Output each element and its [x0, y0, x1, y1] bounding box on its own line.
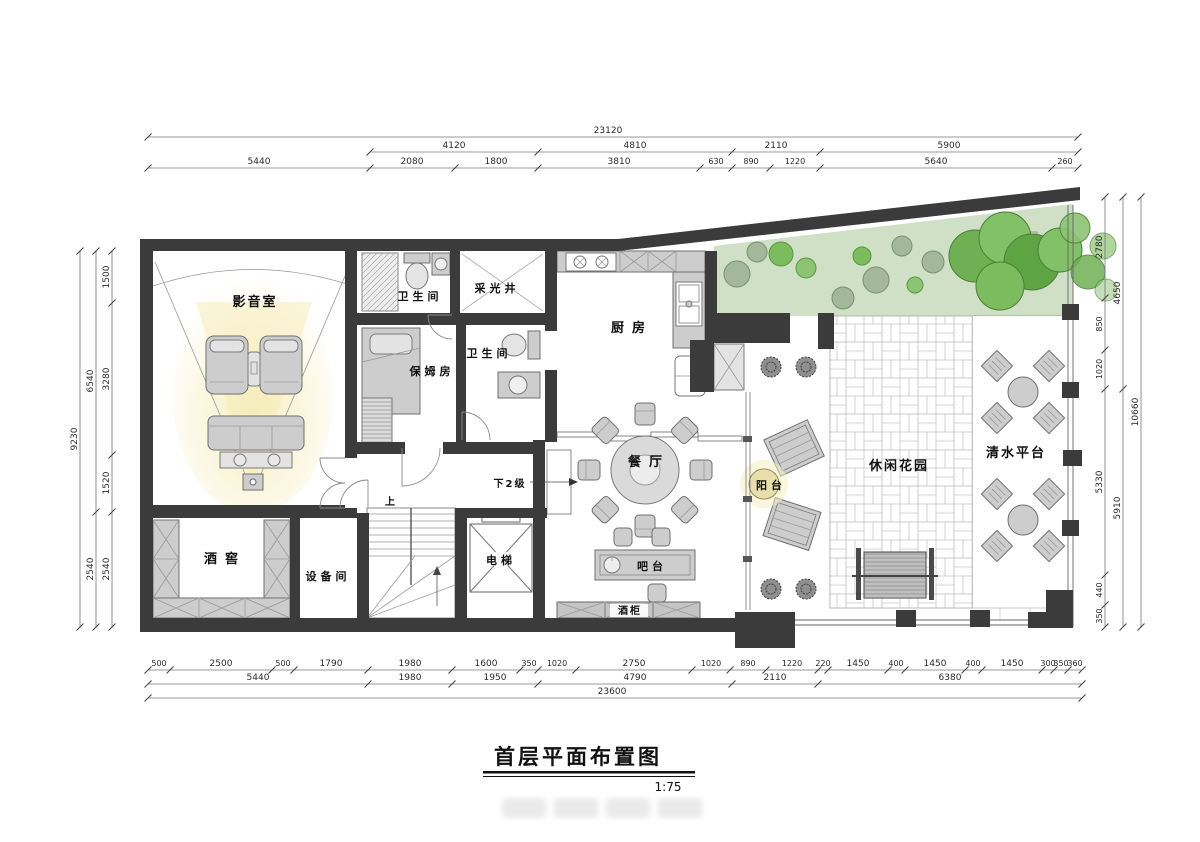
dim-value: 3280	[102, 367, 112, 390]
dim-value: 10660	[1131, 397, 1141, 426]
dim-value: 360	[1067, 659, 1082, 668]
dim-value: 23120	[594, 126, 623, 136]
room-label-bath1: 卫生间	[398, 289, 443, 303]
title-underline	[483, 771, 695, 774]
room-label-water-deck: 清水平台	[986, 445, 1046, 461]
drawing-scale: 1:75	[655, 780, 682, 794]
dim-value: 2750	[623, 659, 646, 669]
bath2-room	[498, 331, 540, 398]
room-label-garden: 休闲花园	[868, 458, 929, 474]
room-label-media: 影音室	[232, 294, 277, 310]
sofa-icon	[208, 416, 304, 450]
shower-area-icon	[362, 253, 398, 311]
dim-value: 4790	[624, 673, 647, 683]
room-label-cellar: 酒窖	[204, 551, 246, 567]
dimension-values-bottom: 500 2500 500 1790 1980 1600 350 1020 275…	[151, 659, 1082, 697]
dim-value: 2540	[86, 557, 96, 580]
dim-value: 5440	[248, 157, 271, 167]
dining-chair-icon	[578, 460, 600, 480]
dim-value: 23600	[598, 687, 627, 697]
dim-value: 1790	[320, 659, 343, 669]
dining-chair-icon	[590, 495, 620, 525]
floor-plan-page: 影音室 卫生间 采光井 厨房 保姆房 卫生间 餐厅 阳台 休闲花园 清水平台 酒…	[0, 0, 1200, 842]
dim-value: 260	[1057, 157, 1072, 166]
potted-plant-icon	[761, 579, 781, 599]
sink-icon	[432, 253, 450, 275]
dim-value: 5910	[1113, 496, 1123, 519]
dim-value: 1600	[475, 659, 498, 669]
dim-value: 1450	[924, 659, 947, 669]
room-label-dining: 餐厅	[627, 454, 670, 470]
sink-icon	[498, 372, 540, 398]
dim-value: 500	[151, 659, 166, 668]
nanny-room	[362, 328, 420, 446]
dim-value: 2110	[764, 673, 787, 683]
room-label-wine-cabinet: 酒柜	[618, 604, 642, 617]
room-label-equipment: 设备间	[306, 569, 351, 583]
dim-value: 9230	[70, 427, 80, 450]
dim-value: 630	[708, 157, 723, 166]
dim-value: 5900	[938, 141, 961, 151]
dim-value: 1800	[485, 157, 508, 167]
room-label-kitchen: 厨房	[611, 320, 653, 336]
dim-value: 440	[1095, 582, 1104, 597]
projector-icon	[243, 474, 263, 490]
bar-stool-icon	[614, 528, 632, 546]
dim-value: 890	[743, 157, 758, 166]
dim-value: 1450	[1001, 659, 1024, 669]
dim-value: 5330	[1095, 470, 1105, 493]
dim-value: 1020	[701, 659, 721, 668]
recliner-seat-icon	[206, 336, 248, 394]
dim-value: 850	[1095, 316, 1104, 331]
dimension-values-top: 23120 4120 4810 2110 5900 5440 2080 1800…	[248, 126, 1073, 167]
wardrobe-icon	[362, 398, 392, 446]
dining-chair-icon	[635, 403, 655, 425]
annotation-up: 上	[385, 495, 397, 508]
seat-console-icon	[248, 352, 260, 386]
title-underline-thin	[483, 776, 695, 777]
drawing-title: 首层平面布置图	[494, 745, 662, 769]
room-label-nanny: 保姆房	[409, 364, 455, 378]
dim-value: 350	[1053, 659, 1068, 668]
dining-chair-icon	[670, 495, 700, 525]
floor-plan-drawing: 影音室 卫生间 采光井 厨房 保姆房 卫生间 餐厅 阳台 休闲花园 清水平台 酒…	[0, 0, 1200, 842]
dim-value: 5640	[925, 157, 948, 167]
staircase	[367, 508, 455, 618]
dim-value: 1020	[547, 659, 567, 668]
bar-stool-icon	[652, 528, 670, 546]
dim-value: 4810	[624, 141, 647, 151]
balcony-area	[714, 344, 824, 610]
dim-value: 2780	[1095, 235, 1105, 258]
dim-value: 4120	[443, 141, 466, 151]
dim-value: 1980	[399, 659, 422, 669]
title-block: 首层平面布置图 1:75	[483, 745, 702, 818]
potted-plant-icon	[761, 357, 781, 377]
kitchen-sink-icon	[676, 282, 702, 326]
swing-bench-icon	[852, 548, 938, 600]
dim-value: 400	[888, 659, 903, 668]
room-label-balcony: 阳台	[756, 478, 786, 492]
dining-chair-icon	[670, 415, 700, 445]
dim-value: 6540	[86, 369, 96, 392]
room-label-bath2: 卫生间	[467, 346, 512, 360]
media-console-icon	[220, 452, 292, 468]
dim-value: 1450	[847, 659, 870, 669]
stove-icon	[566, 253, 616, 271]
dim-value: 1020	[1095, 359, 1104, 379]
dim-value: 890	[740, 659, 755, 668]
annotation-down-steps: 下2级	[494, 477, 527, 490]
dim-value: 3810	[608, 157, 631, 167]
toilet-icon	[404, 253, 430, 289]
wine-cellar-room	[153, 520, 290, 618]
dim-value: 1220	[782, 659, 802, 668]
dim-value: 1950	[484, 673, 507, 683]
dim-value: 4650	[1113, 281, 1123, 304]
room-label-elevator: 电梯	[486, 553, 516, 567]
watermark	[502, 798, 702, 818]
dim-value: 2540	[102, 557, 112, 580]
dimension-values-left: 1500 3280 1520 2540 6540 2540 9230	[70, 265, 112, 580]
bar-stool-icon	[648, 584, 666, 602]
dim-value: 5440	[247, 673, 270, 683]
room-label-light-well: 采光井	[474, 281, 520, 295]
dim-value: 2110	[765, 141, 788, 151]
dim-value: 500	[275, 659, 290, 668]
dim-value: 1980	[399, 673, 422, 683]
planting-strip	[714, 204, 1117, 316]
dim-value: 1220	[785, 157, 805, 166]
dining-chair-icon	[690, 460, 712, 480]
dim-value: 350	[521, 659, 536, 668]
dim-value: 2080	[401, 157, 424, 167]
dim-value: 400	[965, 659, 980, 668]
dim-value: 1500	[102, 265, 112, 288]
potted-plant-icon	[796, 579, 816, 599]
dim-value: 350	[1095, 608, 1104, 623]
potted-plant-icon	[796, 357, 816, 377]
dim-value: 220	[815, 659, 830, 668]
recliner-seat-icon	[260, 336, 302, 394]
step-direction-arrow	[569, 478, 578, 486]
dim-value: 6380	[939, 673, 962, 683]
dim-value: 1520	[102, 471, 112, 494]
dim-value: 2500	[210, 659, 233, 669]
room-label-bar: 吧台	[637, 559, 667, 573]
